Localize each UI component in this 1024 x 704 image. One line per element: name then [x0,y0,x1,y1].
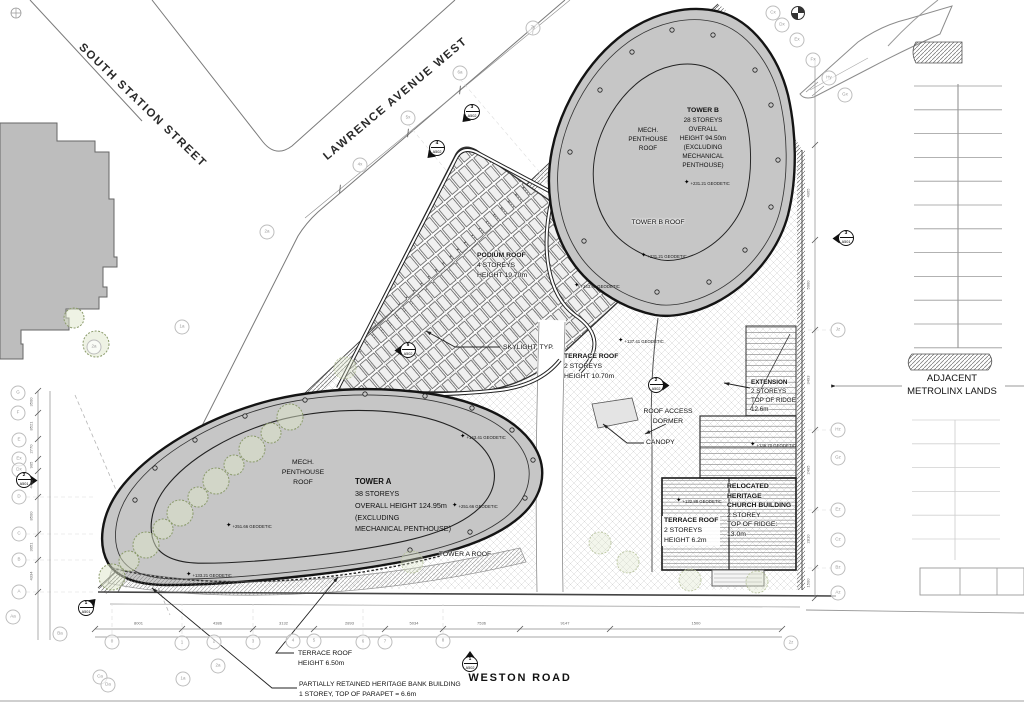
tower-b-title: TOWER B [680,106,726,116]
section-marker-part: 1 [78,601,94,606]
dimension-value: 7536 [477,621,486,626]
tower-a-mech-label: MECH. PENTHOUSE ROOF [282,458,324,488]
grid-bubble-2z: 2z [784,636,799,651]
geodetic-elevation-marker: ✦+136.70 GEODETIC [750,442,796,449]
dimension-value: 8500 [29,511,34,520]
church-title-line: CHURCH BUILDING [727,501,791,511]
tower-b-line: HEIGHT 94.50m [680,134,726,143]
geodetic-elevation-marker: ✦+231.21 GEODETIC [684,180,730,187]
extension-line: 12.6m [751,405,796,414]
dimension-value: 4386 [213,621,222,626]
section-marker-part: A502 [648,387,664,391]
heritage-bank-label: PARTIALLY RETAINED HERITAGE BANK BUILDIN… [299,680,461,700]
mech-line: ROOF [282,478,324,488]
dimension-value: 4065 [806,188,811,197]
geodetic-elevation-marker: ✦+132.88 GEODETIC [676,498,722,505]
tree [589,532,611,554]
section-marker-part [650,384,663,385]
section-marker-part: 5 [400,343,416,348]
grid-bubble-Fx: Fx [806,53,821,68]
geodetic-star-icon: ✦ [460,434,465,441]
terrace-roof-center-label: TERRACE ROOF 2 STOREYS HEIGHT 10.70m [564,352,618,382]
section-marker-part: 1 [462,657,478,662]
grid-bubble-Dx: Dx [775,18,790,33]
metrolinx-line1: ADJACENT [907,372,997,385]
extension-label: EXTENSION 2 STOREYS TOP OF RIDGE 12.6m [751,378,796,415]
tree [334,357,356,379]
tower-a-roof-label: TOWER A ROOF [439,550,491,560]
grid-bubble-Hy: Hy [822,71,837,86]
section-marker-part [80,607,93,608]
canopy-callout: CANOPY [646,438,675,448]
dimension-value: 3500 [29,398,34,407]
terrace-south-line: HEIGHT 6.50m [298,659,352,669]
grid-bubble-2a: 2a [260,225,275,240]
section-marker-part: A502 [400,352,416,356]
terrace-church-line: 2 STOREYS [664,526,718,536]
church-title-line: RELOCATED [727,482,791,492]
tower-b-roof-label: TOWER B ROOF [631,218,684,228]
grid-bubble-Aa: Aa [6,610,21,625]
tree [133,532,159,558]
bank-line: PARTIALLY RETAINED HERITAGE BANK BUILDIN… [299,680,461,690]
grid-bubble-2: 2 [207,635,222,650]
geodetic-text: +136.70 GEODETIC [756,443,795,448]
grid-bubble-2a: 2a [211,659,226,674]
metrolinx-lands-label: ADJACENT METROLINX LANDS [907,372,997,399]
context-building [0,123,117,359]
terrace-center-title: TERRACE ROOF [564,352,618,362]
parking-island-mid [908,354,992,370]
geodetic-text: +132.88 GEODETIC [682,499,721,504]
podium-line: HEIGHT 19.70m [477,271,527,281]
geodetic-text: +133.21 GEODETIC [192,573,231,578]
geodetic-text: +251.66 GEODETIC [458,504,497,509]
metrolinx-line2: METROLINX LANDS [907,385,997,398]
mech-line: ROOF [628,144,667,153]
mech-line: PENTHOUSE [282,468,324,478]
dimension-value: 2770 [29,445,34,454]
dimension-value: 905 [29,462,34,469]
podium-title: PODIUM ROOF [477,251,527,261]
grid-bubble-G: G [11,386,26,401]
section-marker-5-A502: 5A502 [400,342,416,358]
grid-bubble-Ba: Ba [53,627,68,642]
extension-line: 2 STOREYS [751,387,796,396]
section-marker-part: A502 [464,114,480,118]
tree [617,551,639,573]
grid-bubble-4x: 4x [353,158,368,173]
terrace-roof-church-label: TERRACE ROOF 2 STOREYS HEIGHT 6.2m [662,516,720,546]
tree [239,436,265,462]
section-marker-part [466,111,479,112]
geodetic-text: +137.41 GEODETIC [624,339,663,344]
section-marker-part [464,663,477,664]
extension-line: TOP OF RIDGE [751,396,796,405]
parking-stalls-lower [912,420,1000,560]
roof-access-dormer-callout: ROOF ACCESS DORMER [643,407,692,427]
dormer-line: ROOF ACCESS [643,407,692,417]
mech-line: MECH. [628,126,667,135]
terrace-church-line: HEIGHT 6.2m [664,536,718,546]
church-line: TOP OF RIDGE: [727,520,791,530]
geodetic-elevation-marker: ✦+231.21 GEODETIC [641,253,687,260]
geodetic-elevation-marker: ✦+133.21 GEODETIC [186,572,232,579]
section-marker-part: A502 [429,150,445,154]
tree [119,551,139,571]
tower-a-line: (EXCLUDING [355,512,451,524]
mech-line: MECH. [282,458,324,468]
grid-bubble-Bz: Bz [831,561,846,576]
geodetic-text: +143.41 GEODETIC [580,284,619,289]
grid-bubble-C: C [12,527,27,542]
podium-roof-label: PODIUM ROOF 4 STOREYS HEIGHT 19.70m [477,251,527,281]
geodetic-star-icon: ✦ [226,523,231,530]
geodetic-text: +143.41 GEODETIC [466,435,505,440]
section-marker-1-A502: 1A502 [462,656,478,672]
grid-bubble-7y: 7y [526,21,541,36]
bank-line: 1 STOREY, TOP OF PARAPET = 6.6m [299,690,461,700]
dimension-value: 2495 [806,466,811,475]
weston-road-label: WESTON ROAD [468,671,571,687]
terrace-center-line: 2 STOREYS [564,362,618,372]
geodetic-star-icon: ✦ [618,338,623,345]
tree [401,551,423,573]
tree [64,308,84,328]
section-marker-3-A501: 3A501 [838,230,854,246]
dimension-value: 3132 [279,621,288,626]
section-marker-part: A502 [462,666,478,670]
grid-bubble-Gx: Gx [838,88,853,103]
geodetic-elevation-marker: ✦+251.66 GEODETIC [226,523,272,530]
site-plan-canvas: SOUTH STATION STREET LAWRENCE AVENUE WES… [0,0,1024,704]
grid-bubble-1: 1 [175,636,190,651]
grid-bubble-Hz: Hz [831,423,846,438]
dimension-value: 9147 [561,621,570,626]
terrace-center-line: HEIGHT 10.70m [564,372,618,382]
metrolinx-parking [836,0,1024,595]
grid-bubble-1a: 1a [175,320,190,335]
geodetic-star-icon: ✦ [641,253,646,260]
tree [746,571,768,593]
dimension-value: 2810 [806,535,811,544]
grid-bubble-Gz: Gz [831,451,846,466]
grid-bubble-E: E [12,433,27,448]
section-marker-4-A502: 4A502 [429,140,445,156]
section-marker-part: 2 [648,378,664,383]
grid-bubble-5: 5 [307,634,322,649]
geodetic-elevation-marker: ✦+143.41 GEODETIC [460,434,506,441]
grid-bubble-0: 0 [105,635,120,650]
grid-bubble-3: 3 [246,635,261,650]
grid-bubble-Az: Az [831,586,846,601]
tower-a-line: 38 STOREYS [355,488,451,500]
grid-bubble-A: A [12,585,27,600]
skylight-callout: SKYLIGHT, TYP. [503,343,554,353]
church-label: RELOCATED HERITAGE CHURCH BUILDING 2 STO… [727,482,791,539]
dimension-value: 5034 [410,621,419,626]
terrace-church-title: TERRACE ROOF [664,516,718,526]
section-marker-part [402,349,415,350]
geodetic-star-icon: ✦ [750,442,755,449]
tree [277,404,303,430]
tree [261,423,281,443]
dimension-value: 8001 [134,621,143,626]
tree [679,569,701,591]
grid-bubble-8: 8 [436,634,451,649]
geodetic-elevation-marker: ✦+137.41 GEODETIC [618,338,664,345]
dimension-value: 4455 [29,480,34,489]
geodetic-star-icon: ✦ [574,283,579,290]
section-marker-2-A502: 2A502 [648,377,664,393]
dimension-value: 3493 [806,376,811,385]
tower-a-title: TOWER A [355,476,451,488]
dimension-value: 3051 [29,543,34,552]
geodetic-text: +231.21 GEODETIC [690,181,729,186]
section-marker-part [840,237,853,238]
section-marker-part: A501 [78,610,94,614]
tower-b-line: OVERALL [680,125,726,134]
section-marker-part [431,147,444,148]
dormer-line: DORMER [643,417,692,427]
grid-bubble-1a: 1a [176,672,191,687]
grid-bubble-Da: Da [101,678,116,693]
geodetic-elevation-marker: ✦+251.66 GEODETIC [452,503,498,510]
section-marker-part: 2 [16,473,32,478]
dimension-value: 4334 [29,572,34,581]
geodetic-star-icon: ✦ [676,498,681,505]
dimension-value: 2893 [345,621,354,626]
tree [167,500,193,526]
geodetic-text: +231.21 GEODETIC [647,254,686,259]
tower-b-line: PENTHOUSE) [680,161,726,170]
tower-b-mech-label: MECH. PENTHOUSE ROOF [628,126,667,153]
geodetic-elevation-marker: ✦+143.41 GEODETIC [574,283,620,290]
geodetic-star-icon: ✦ [684,180,689,187]
section-marker-1-A501: 1A501 [78,600,94,616]
grid-bubble-Jz: Jz [831,323,846,338]
grid-bubble-Ex: Ex [790,33,805,48]
podium-line: 4 STOREYS [477,261,527,271]
church-title-line: HERITAGE [727,492,791,502]
geodetic-text: +251.66 GEODETIC [232,524,271,529]
grid-bubble-6: 6 [356,635,371,650]
tower-a-line: OVERALL HEIGHT 124.95m [355,500,451,512]
parking-island-top [913,42,962,63]
geodetic-star-icon: ✦ [452,503,457,510]
grid-bubble-6a: 6a [453,66,468,81]
grid-bubble-F: F [11,406,26,421]
grid-bubble-Cz: Cz [831,533,846,548]
tower-b-roof-shape [549,9,795,316]
grid-bubble-D: D [12,490,27,505]
tree [188,487,208,507]
terrace-roof-south-label: TERRACE ROOF HEIGHT 6.50m [298,649,352,669]
grid-bubble-7: 7 [378,635,393,650]
church-line: 13.0m [727,530,791,540]
grid-bubble-B: B [12,553,27,568]
terrace-south-line: TERRACE ROOF [298,649,352,659]
church-line: 2 STOREY [727,511,791,521]
tree [203,468,229,494]
tower-a-label: TOWER A 38 STOREYS OVERALL HEIGHT 124.95… [355,476,451,535]
tree [224,455,244,475]
dimension-value: 1500 [806,579,811,588]
extension-title: EXTENSION [751,378,796,387]
tree [153,519,173,539]
section-marker-part: 3 [838,231,854,236]
tower-b-line: 28 STOREYS [680,116,726,125]
dimension-value: 5000 [806,281,811,290]
tower-b-line: (EXCLUDING [680,143,726,152]
mech-line: PENTHOUSE [628,135,667,144]
grid-bubble-2a: 2a [87,340,102,355]
section-marker-part: 4 [429,141,445,146]
tree [99,564,125,590]
grid-bubble-Ez: Ez [831,503,846,518]
grid-bubble-5x: 5x [401,111,416,126]
tower-a-line: MECHANICAL PENTHOUSE) [355,523,451,535]
section-marker-part: 3 [464,105,480,110]
section-marker-3-A502: 3A502 [464,104,480,120]
grid-bubble-4: 4 [286,634,301,649]
section-marker-part: A501 [838,240,854,244]
geodetic-star-icon: ✦ [186,572,191,579]
tower-b-label: TOWER B 28 STOREYS OVERALL HEIGHT 94.50m… [680,106,726,171]
tower-b-line: MECHANICAL [680,152,726,161]
dimension-value: 1500 [692,621,701,626]
dimension-value: 8521 [29,422,34,431]
